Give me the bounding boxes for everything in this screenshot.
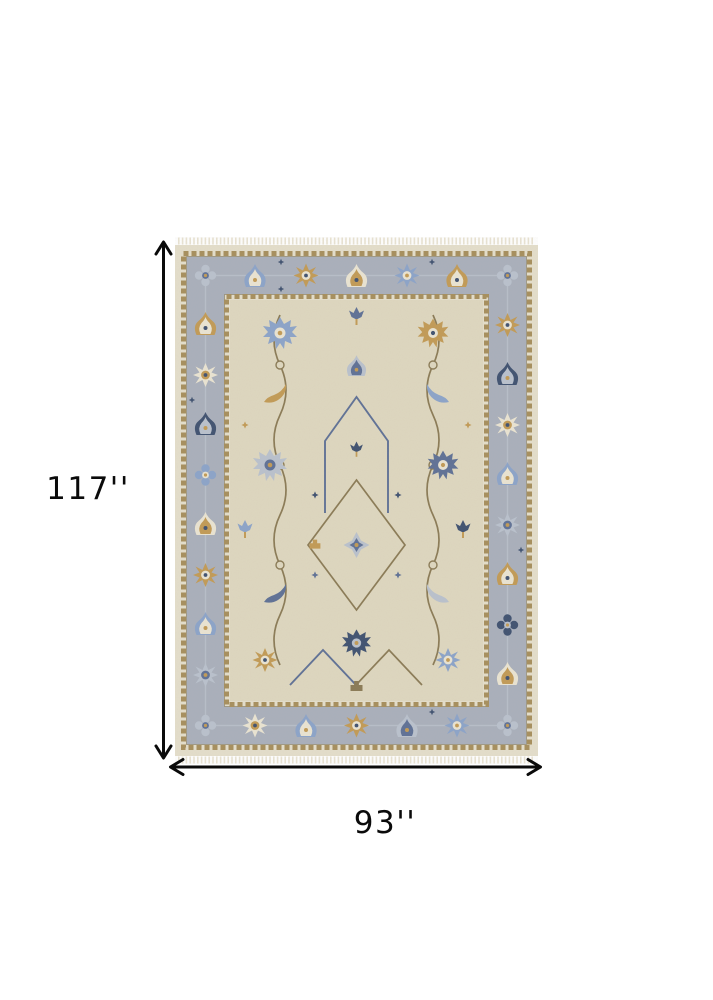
width-dimension-label: 93'' [325,805,445,841]
rug-image [175,237,538,764]
product-dimension-image: 117'' 93'' [0,0,713,1000]
rug-photo [175,237,538,764]
fabric-texture [175,237,538,764]
height-dimension-label: 117'' [28,471,148,507]
height-dimension-arrow [156,242,171,758]
